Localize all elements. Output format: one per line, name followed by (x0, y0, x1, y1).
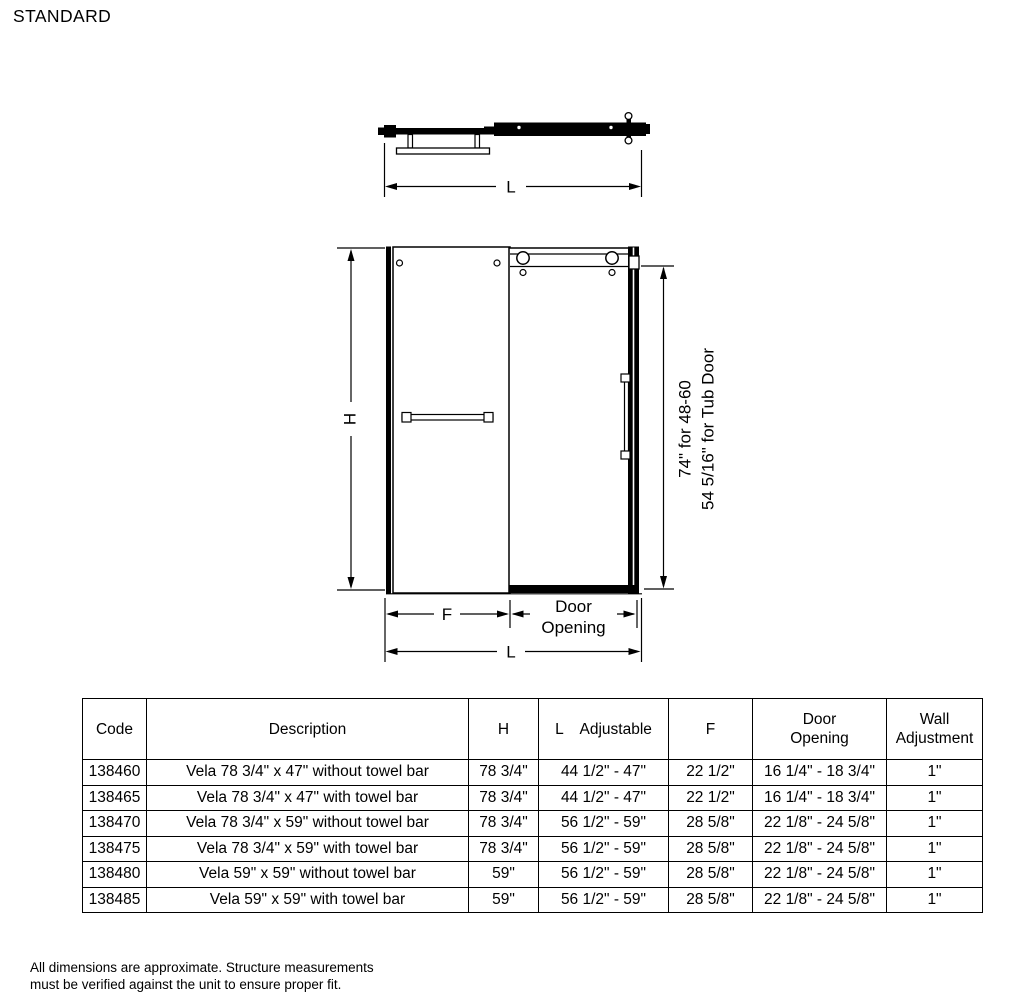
cell-l-adjustable: 56 1/2" - 59" (539, 836, 669, 862)
cell-wall-adjustment: 1" (887, 887, 983, 913)
height-dimension: H (337, 248, 385, 590)
col-header-f: F (669, 699, 753, 760)
door-opening-label-line2: Opening (541, 618, 605, 637)
cell-door-opening: 22 1/8" - 24 5/8" (753, 862, 887, 888)
cell-description: Vela 78 3/4" x 59" without towel bar (147, 811, 469, 837)
door-height-note-line2: 54 5/16" for Tub Door (699, 348, 718, 510)
cell-l-adjustable: 56 1/2" - 59" (539, 887, 669, 913)
fixed-panel-label: F (442, 605, 452, 624)
cell-description: Vela 59" x 59" without towel bar (147, 862, 469, 888)
table-row: 138480 Vela 59" x 59" without towel bar … (83, 862, 983, 888)
cell-f: 22 1/2" (669, 760, 753, 786)
cell-f: 28 5/8" (669, 862, 753, 888)
cell-wall-adjustment: 1" (887, 811, 983, 837)
table-row: 138485 Vela 59" x 59" with towel bar 59"… (83, 887, 983, 913)
cell-l-adjustable: 56 1/2" - 59" (539, 811, 669, 837)
front-view-drawing (386, 247, 642, 594)
table-row: 138470 Vela 78 3/4" x 59" without towel … (83, 811, 983, 837)
cell-h: 59" (469, 862, 539, 888)
cell-wall-adjustment: 1" (887, 862, 983, 888)
cell-wall-adjustment: 1" (887, 760, 983, 786)
col-header-door-opening: Door Opening (753, 699, 887, 760)
cell-code: 138480 (83, 862, 147, 888)
cell-code: 138460 (83, 760, 147, 786)
cell-door-opening: 16 1/4" - 18 3/4" (753, 760, 887, 786)
cell-code: 138470 (83, 811, 147, 837)
col-header-description: Description (147, 699, 469, 760)
cell-f: 28 5/8" (669, 887, 753, 913)
cell-f: 22 1/2" (669, 785, 753, 811)
col-header-code: Code (83, 699, 147, 760)
cell-f: 28 5/8" (669, 811, 753, 837)
cell-description: Vela 78 3/4" x 47" without towel bar (147, 760, 469, 786)
cell-description: Vela 78 3/4" x 59" with towel bar (147, 836, 469, 862)
front-view-length-label: L (506, 643, 515, 662)
cell-door-opening: 22 1/8" - 24 5/8" (753, 836, 887, 862)
cell-code: 138465 (83, 785, 147, 811)
technical-drawing: L (0, 0, 1024, 695)
fixed-panel-dimension: F (386, 600, 510, 628)
col-header-l-adjustable: L Adjustable (539, 699, 669, 760)
cell-wall-adjustment: 1" (887, 785, 983, 811)
door-height-dimension: 74" for 48-60 54 5/16" for Tub Door (641, 266, 718, 589)
cell-f: 28 5/8" (669, 836, 753, 862)
cell-l-adjustable: 44 1/2" - 47" (539, 760, 669, 786)
cell-h: 78 3/4" (469, 811, 539, 837)
col-header-h: H (469, 699, 539, 760)
cell-description: Vela 78 3/4" x 47" with towel bar (147, 785, 469, 811)
table-row: 138465 Vela 78 3/4" x 47" with towel bar… (83, 785, 983, 811)
cell-h: 59" (469, 887, 539, 913)
cell-h: 78 3/4" (469, 836, 539, 862)
cell-l-adjustable: 44 1/2" - 47" (539, 785, 669, 811)
spec-table: Code Description H L Adjustable F Door O… (82, 698, 983, 913)
cell-door-opening: 22 1/8" - 24 5/8" (753, 887, 887, 913)
table-row: 138460 Vela 78 3/4" x 47" without towel … (83, 760, 983, 786)
col-header-wall-adjustment: Wall Adjustment (887, 699, 983, 760)
cell-door-opening: 22 1/8" - 24 5/8" (753, 811, 887, 837)
door-height-note-line1: 74" for 48-60 (676, 380, 695, 478)
footer-note: All dimensions are approximate. Structur… (30, 960, 374, 993)
table-header-row: Code Description H L Adjustable F Door O… (83, 699, 983, 760)
cell-h: 78 3/4" (469, 760, 539, 786)
door-opening-label-line1: Door (555, 597, 592, 616)
height-label: H (341, 413, 360, 425)
cell-code: 138485 (83, 887, 147, 913)
top-view-drawing (378, 113, 650, 154)
cell-wall-adjustment: 1" (887, 836, 983, 862)
spec-sheet-page: STANDARD (0, 0, 1024, 1007)
cell-h: 78 3/4" (469, 785, 539, 811)
cell-code: 138475 (83, 836, 147, 862)
cell-description: Vela 59" x 59" with towel bar (147, 887, 469, 913)
cell-l-adjustable: 56 1/2" - 59" (539, 862, 669, 888)
top-view-length-label: L (506, 178, 515, 197)
door-opening-dimension: Door Opening (512, 597, 638, 637)
cell-door-opening: 16 1/4" - 18 3/4" (753, 785, 887, 811)
table-row: 138475 Vela 78 3/4" x 59" with towel bar… (83, 836, 983, 862)
